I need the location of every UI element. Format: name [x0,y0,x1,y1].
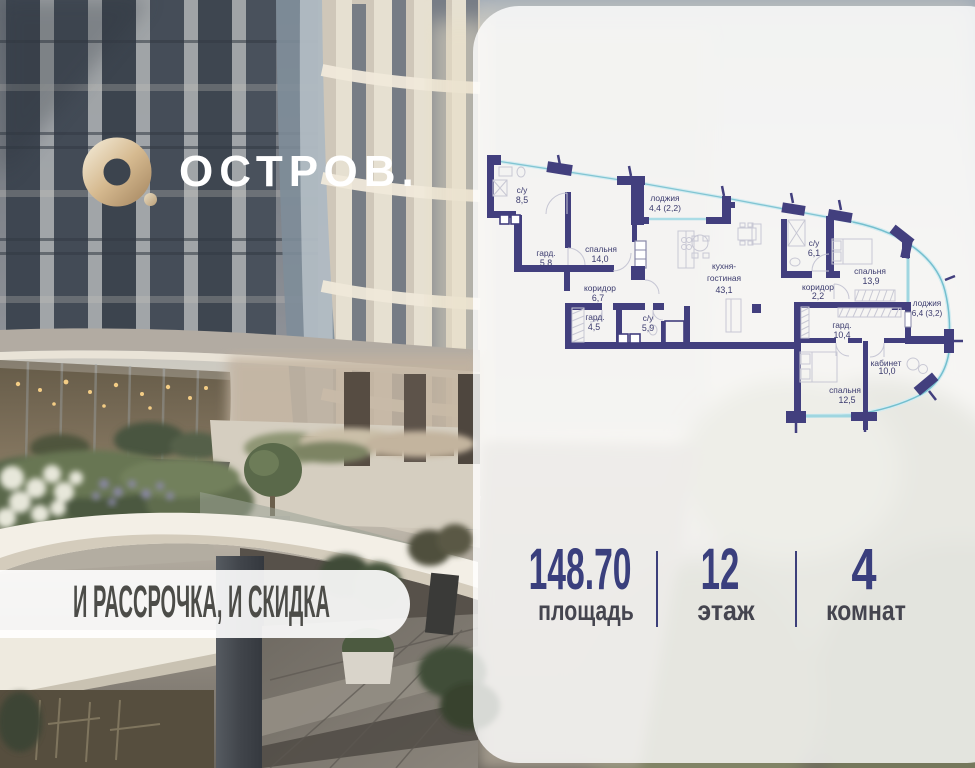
svg-text:13,9: 13,9 [862,276,879,286]
svg-text:гостиная: гостиная [707,273,741,283]
svg-text:спальня: спальня [585,244,617,254]
svg-text:кухня-: кухня- [712,261,736,271]
svg-text:гард.: гард. [832,320,851,330]
svg-text:2,2: 2,2 [812,291,824,301]
svg-text:10,4: 10,4 [833,330,850,340]
svg-text:8,5: 8,5 [516,195,528,205]
svg-text:43,1: 43,1 [715,285,732,295]
svg-text:лоджия: лоджия [650,193,679,203]
svg-text:спальня: спальня [854,266,886,276]
svg-text:лоджия: лоджия [913,299,942,308]
svg-text:4,4 (2,2): 4,4 (2,2) [649,203,681,213]
svg-text:гард.: гард. [585,312,604,322]
svg-text:6,4 (3,2): 6,4 (3,2) [912,309,943,318]
svg-text:12,5: 12,5 [838,395,855,405]
svg-text:спальня: спальня [829,385,861,395]
svg-text:10,0: 10,0 [878,366,895,376]
svg-text:5,9: 5,9 [642,323,654,333]
svg-text:4,5: 4,5 [588,322,600,332]
svg-text:6,1: 6,1 [808,248,820,258]
svg-text:14,0: 14,0 [591,254,608,264]
svg-text:с/у: с/у [517,185,529,195]
svg-text:гард.: гард. [536,248,555,258]
svg-text:5,8: 5,8 [540,258,552,268]
svg-text:с/у: с/у [643,313,655,323]
svg-text:коридор: коридор [584,283,616,293]
svg-text:6,7: 6,7 [592,293,604,303]
svg-text:с/у: с/у [809,238,821,248]
